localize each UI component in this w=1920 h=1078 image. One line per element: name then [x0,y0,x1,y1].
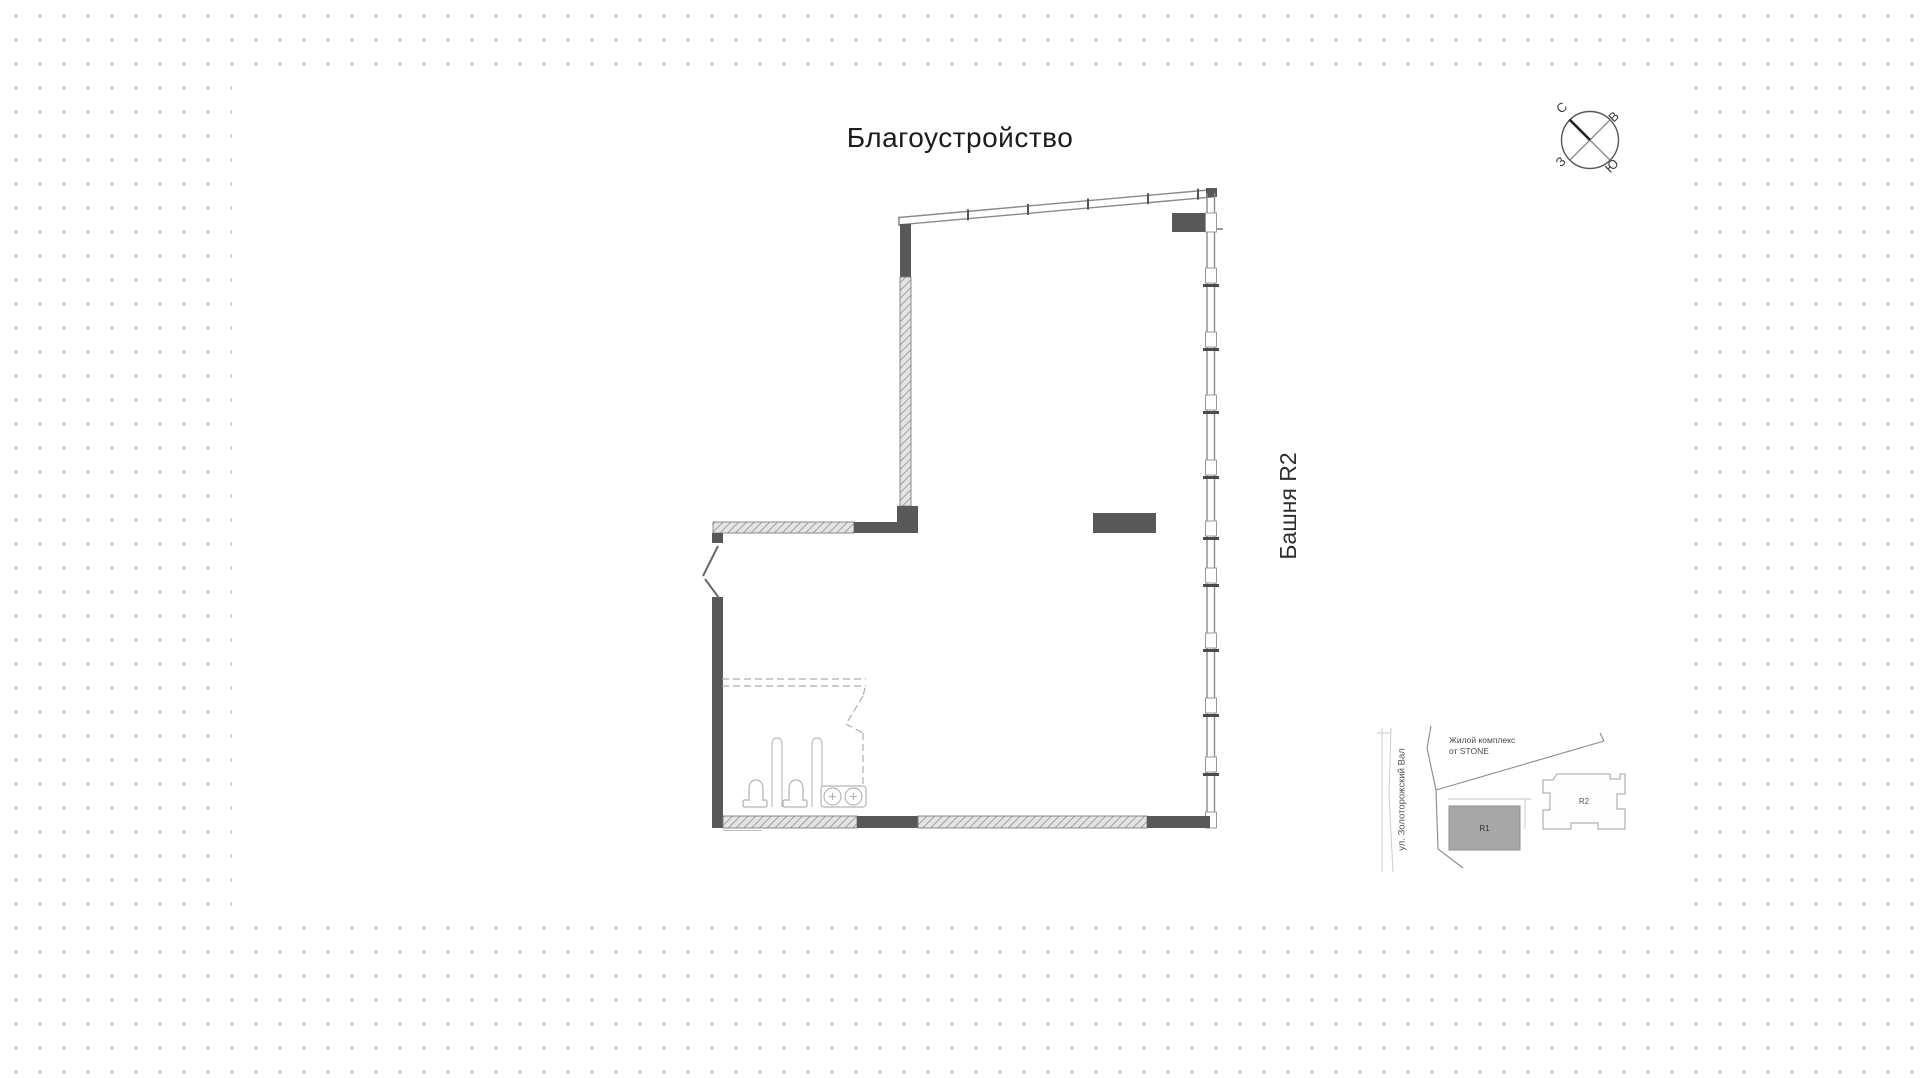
floor-plan-drawing [0,0,1920,1078]
minimap-complex-label-line1: Жилой комплекс [1449,735,1569,746]
floor-plan [703,188,1223,831]
window-mullion [1206,521,1217,536]
window-mullion [1206,268,1217,283]
wall-segment [712,609,723,828]
window-mullion [1206,633,1217,648]
window-mullion [1206,332,1217,347]
window-mullion [1206,757,1217,772]
wall-bottom [723,816,1210,831]
toilet-icon [783,780,807,807]
minimap-street-label: ул. Золоторожский Вал [1396,724,1409,876]
hatched-wall [713,522,854,533]
sink-icon [821,786,866,807]
window-mullion [1206,698,1217,713]
wall-segment [1093,513,1156,533]
street-lines [1377,728,1393,872]
window-mullion [1206,568,1217,583]
minimap-complex-label-line2: от STONE [1449,746,1569,757]
wall-segment [1172,213,1207,232]
entrance-door [703,533,723,609]
window-wall-right [1203,193,1219,828]
wall-segment [900,224,911,277]
page-title: Благоустройство [760,122,1160,154]
window-mullion [1206,395,1217,410]
wall-segment [854,522,918,533]
window-mullion [1206,213,1217,232]
window-mullion [1206,460,1217,475]
tower-label: Башня R2 [1274,406,1302,606]
minimap-r1-label: R1 [1449,806,1520,850]
minimap-complex-label: Жилой комплекс от STONE [1449,735,1569,756]
window-wall-top [899,188,1217,226]
hatched-wall [900,277,911,506]
toilet-icon [743,780,767,807]
minimap-r2-label: R2 [1543,773,1625,829]
page-background: { "page": { "title": "Благоустройство" }… [0,0,1920,1078]
